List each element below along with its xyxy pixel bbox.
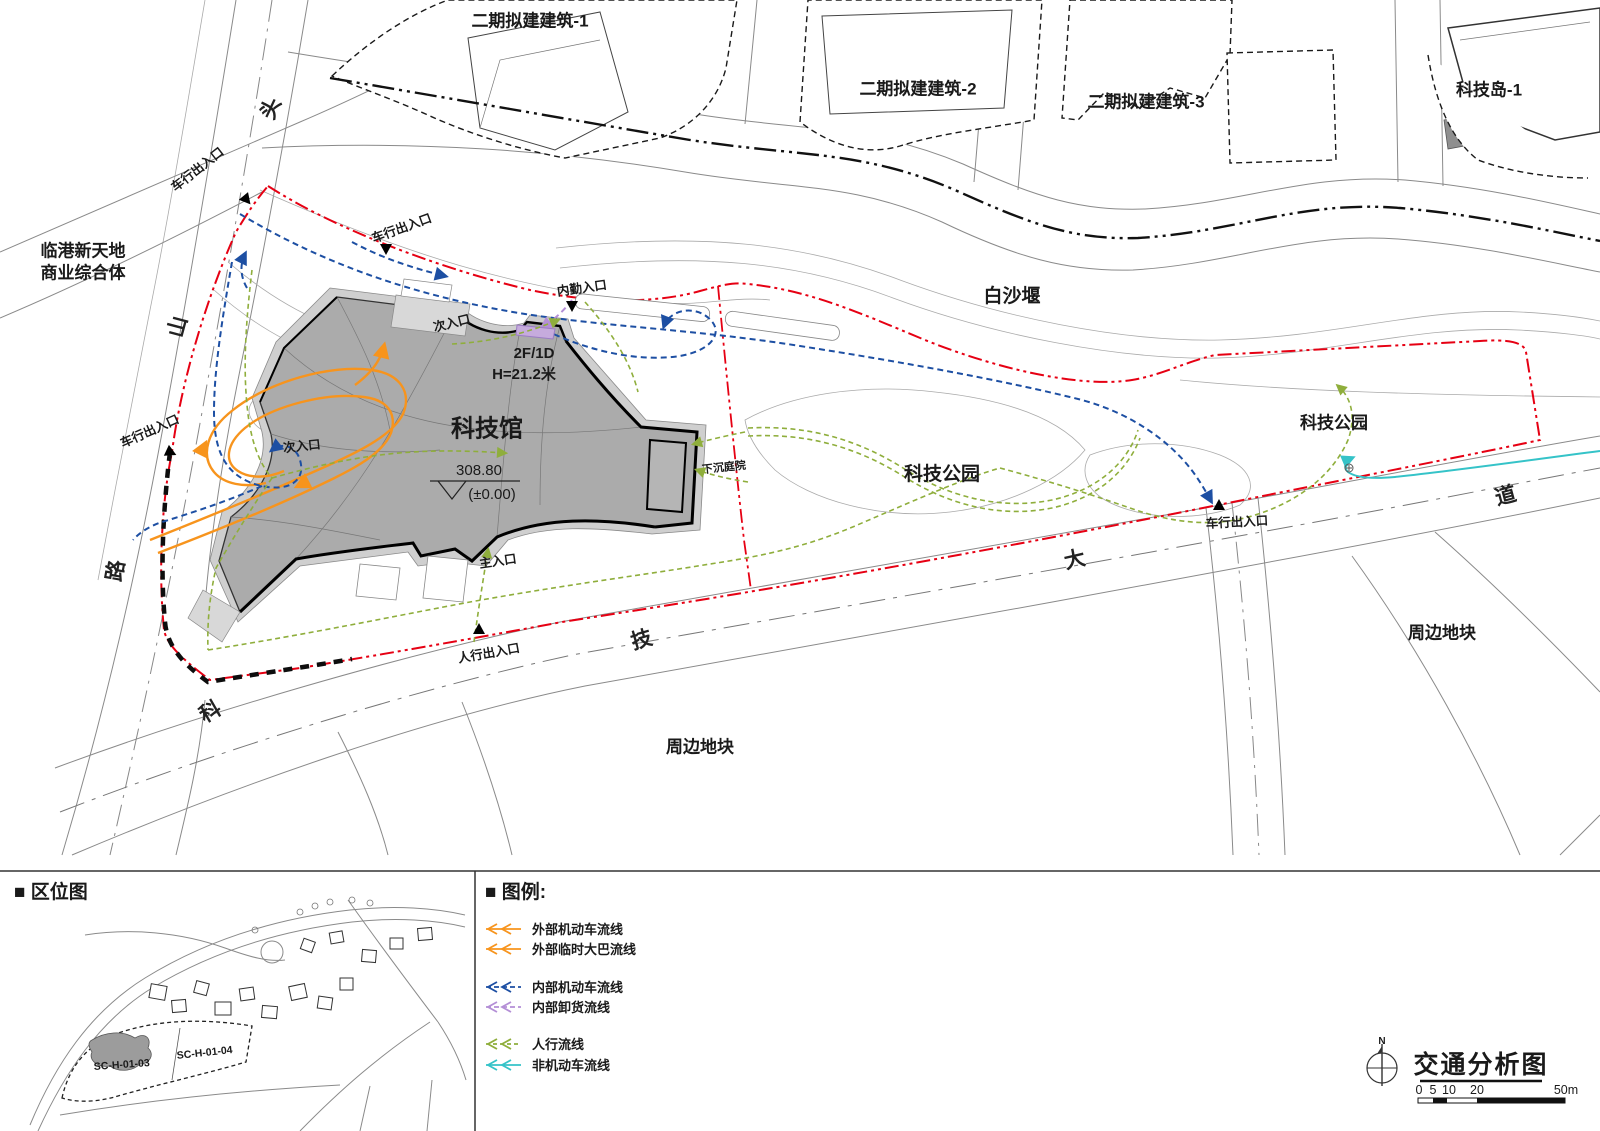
entrance-vehicle-n: 车行出入口 [370, 210, 434, 245]
legend-panel-title: ■ 图例: [485, 880, 546, 903]
svg-text:内部卸货流线: 内部卸货流线 [532, 1000, 610, 1015]
svg-text:10: 10 [1442, 1083, 1456, 1097]
legend-item-non-motorized: 非机动车流线 [486, 1058, 610, 1073]
scale-bar: 0 5 10 20 50m [1416, 1083, 1579, 1103]
parcel-label-phase2-2: 二期拟建建筑-2 [859, 78, 976, 98]
legend-panel: ■ 图例: 外部机动车流线 外部临时大巴流线 [485, 880, 636, 1073]
area-label-tech-park-east: 科技公园 [1300, 412, 1368, 432]
entrance-triangle-icon [566, 301, 578, 312]
bottom-panel: ■ 区位图 [0, 871, 1600, 1131]
flow-arrow-icon [486, 1002, 521, 1012]
flow-arrow-icon [486, 944, 521, 954]
area-label-tech-park: 科技公园 [904, 462, 980, 485]
parcel-division-line [718, 286, 751, 590]
location-map-panel: ■ 区位图 [14, 880, 466, 1131]
area-label-surrounding-east: 周边地块 [1408, 622, 1477, 642]
entrance-vehicle-e: 车行出入口 [1205, 513, 1268, 531]
road-char-ke: 科 [195, 696, 225, 727]
flow-arrow-icon [486, 924, 521, 934]
mini-buildings [149, 927, 433, 1018]
road-char-lu: 路 [102, 557, 129, 583]
svg-text:内部机动车流线: 内部机动车流线 [532, 980, 623, 995]
flow-arrow-icon [486, 982, 521, 992]
entrance-triangle-icon [473, 623, 485, 634]
parcel-label-phase2-1: 二期拟建建筑-1 [471, 10, 588, 30]
parcel-label-tech-island: 科技岛-1 [1456, 79, 1522, 99]
area-label-surrounding-south: 周边地块 [666, 736, 735, 756]
legend-item-external-bus: 外部临时大巴流线 [486, 942, 636, 957]
bus-stop-icon [1345, 464, 1353, 472]
entrance-vehicle-nw: 车行出入口 [168, 144, 226, 194]
area-label-commercial-2: 商业综合体 [41, 262, 127, 282]
entrance-triangle-icon [239, 192, 255, 208]
north-arrow-icon: N [1367, 1036, 1397, 1086]
area-label-baishayan: 白沙堰 [983, 284, 1040, 307]
entrance-triangle-icon [380, 244, 392, 255]
road-char-da: 大 [1062, 547, 1088, 574]
building-elevation: 308.80 [456, 462, 502, 479]
flow-arrow-icon [486, 1039, 521, 1049]
north-label: N [1378, 1036, 1385, 1047]
svg-text:非机动车流线: 非机动车流线 [532, 1058, 610, 1073]
svg-text:外部机动车流线: 外部机动车流线 [531, 922, 623, 937]
traffic-analysis-drawing: 二期拟建建筑-1 二期拟建建筑-2 二期拟建建筑-3 科技岛-1 临港新天地 商… [0, 0, 1600, 1131]
svg-text:20: 20 [1470, 1083, 1484, 1097]
road-char-dao: 道 [1492, 481, 1518, 510]
building-name: 科技馆 [451, 414, 523, 442]
sunken-courtyard-box [647, 440, 686, 512]
title-block: N 交通分析图 0 5 10 20 50m [1367, 1036, 1578, 1103]
building-elevation-datum: (±0.00) [468, 486, 515, 503]
legend-item-pedestrian: 人行流线 [486, 1037, 584, 1052]
road-char-ji: 技 [628, 626, 655, 654]
entrance-vehicle-w: 车行出入口 [118, 411, 181, 450]
location-panel-title: ■ 区位图 [14, 880, 88, 903]
svg-text:5: 5 [1430, 1083, 1437, 1097]
flow-arrow-icon [486, 1060, 521, 1070]
building-floors: 2F/1D [514, 345, 555, 362]
svg-text:人行流线: 人行流线 [532, 1037, 584, 1052]
area-label-commercial-1: 临港新天地 [41, 240, 126, 260]
legend-item-internal-vehicle: 内部机动车流线 [486, 980, 623, 995]
entrance-pedestrian: 人行出入口 [457, 640, 521, 666]
svg-text:50m: 50m [1554, 1083, 1578, 1097]
road-char-tou: 头 [256, 94, 286, 123]
drawing-title: 交通分析图 [1413, 1050, 1548, 1079]
svg-text:外部临时大巴流线: 外部临时大巴流线 [531, 942, 636, 957]
building-height: H=21.2米 [492, 365, 557, 383]
site-code-label: SC-H-01-03 [93, 1057, 150, 1073]
label-sunken-courtyard: 下沉庭院 [701, 458, 746, 477]
adjacent-code-label: SC-H-01-04 [176, 1044, 233, 1062]
parcel-label-phase2-3: 二期拟建建筑-3 [1087, 91, 1204, 111]
road-char-shan: 山 [164, 314, 192, 340]
legend-item-external-vehicle: 外部机动车流线 [486, 922, 623, 937]
flow-non-motorized [1345, 451, 1600, 478]
legend-item-internal-unloading: 内部卸货流线 [486, 1000, 610, 1015]
svg-text:0: 0 [1416, 1083, 1423, 1097]
